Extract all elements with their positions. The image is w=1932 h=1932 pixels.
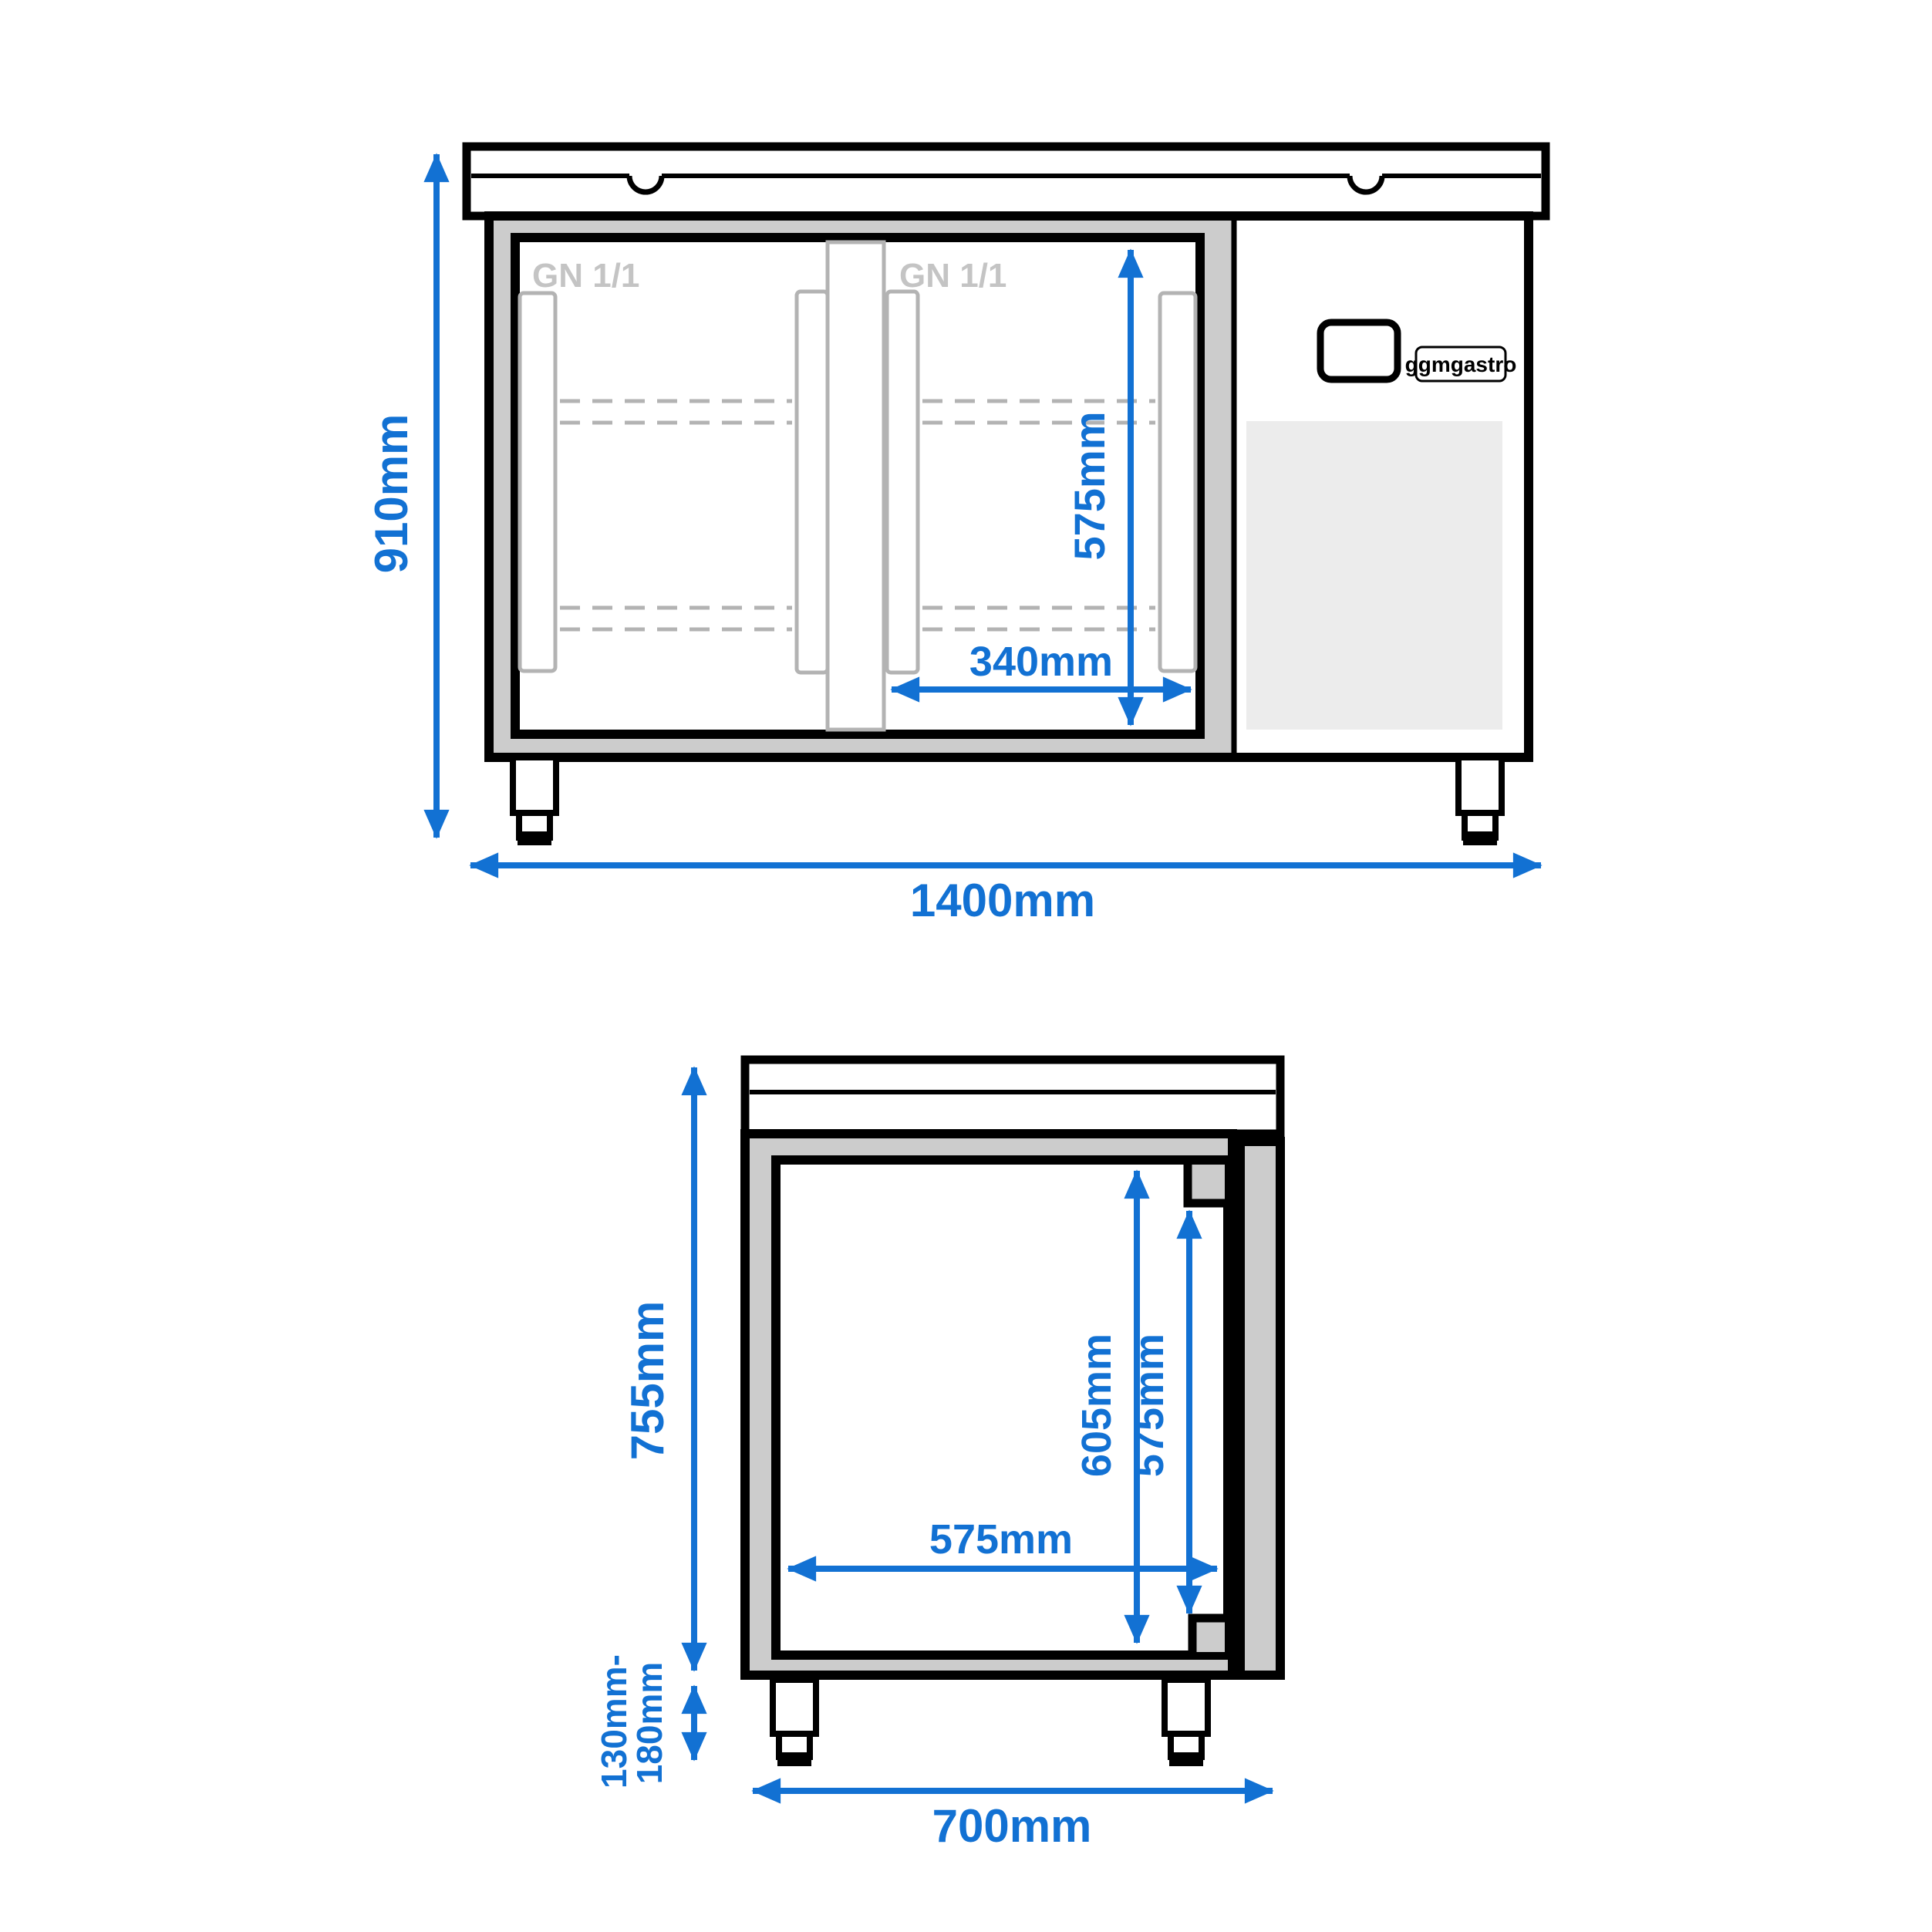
right-door-hinge-bar	[1160, 293, 1195, 671]
right-door-handle	[887, 292, 918, 673]
dim-side-inner-height-door-label: 575mm	[1126, 1334, 1172, 1477]
brand-badge: ggmgastro	[1405, 347, 1517, 381]
cavity-step-bottom	[1192, 1618, 1225, 1655]
brand-label: ggmgastro	[1405, 352, 1517, 376]
dim-front-door-width-label: 340mm	[969, 639, 1113, 685]
dim-front-width-label: 1400mm	[910, 875, 1095, 926]
gn-label-right: GN 1/1	[899, 257, 1006, 295]
cavity-step-top	[1188, 1160, 1225, 1203]
dim-side-feet-min-label: 130mm-	[594, 1654, 634, 1789]
dim-front-width: 1400mm	[470, 865, 1541, 926]
dim-side-height-label: 755mm	[622, 1301, 673, 1461]
dim-side-inner-height-full-label: 605mm	[1074, 1334, 1120, 1477]
side-door-slab	[1240, 1141, 1280, 1675]
dim-side-depth: 700mm	[753, 1791, 1273, 1852]
control-display	[1320, 322, 1398, 379]
gn-label-left: GN 1/1	[532, 257, 639, 295]
dim-side-feet-range: 130mm- 180mm	[594, 1654, 694, 1789]
vent-panel	[1246, 421, 1502, 730]
drawing-canvas: GN 1/1 GN 1/1	[0, 0, 1932, 1932]
dim-side-feet-max-label: 180mm	[629, 1662, 669, 1785]
refrigerated-counter-drawing: GN 1/1 GN 1/1	[0, 0, 1932, 1932]
dim-front-height-label: 910mm	[366, 414, 417, 574]
dim-side-inner-depth-label: 575mm	[929, 1516, 1073, 1563]
side-leg-left	[773, 1680, 816, 1766]
dim-side-height: 755mm	[622, 1067, 694, 1671]
front-view: GN 1/1 GN 1/1	[366, 147, 1546, 926]
side-leg-right	[1165, 1680, 1208, 1766]
front-leg-right	[1458, 757, 1502, 845]
front-leg-left	[513, 757, 556, 845]
side-worktop	[745, 1060, 1280, 1134]
dim-side-depth-label: 700mm	[932, 1800, 1092, 1852]
dim-front-height: 910mm	[366, 154, 437, 838]
front-worktop	[467, 147, 1546, 216]
side-body	[745, 1134, 1280, 1675]
left-door-hinge-bar	[520, 293, 555, 671]
left-door-handle	[797, 292, 828, 673]
side-view: 755mm 130mm- 180mm 605mm 575mm 575mm 700…	[594, 1060, 1280, 1852]
dim-front-inner-height-label: 575mm	[1065, 411, 1114, 560]
center-mullion	[828, 242, 884, 730]
